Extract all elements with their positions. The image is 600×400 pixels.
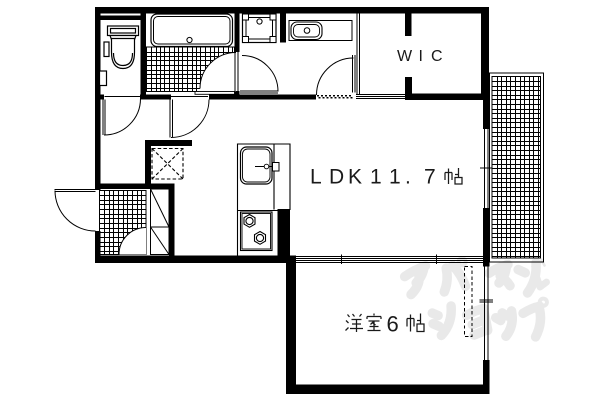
- svg-text:6: 6: [387, 312, 399, 337]
- svg-text:WIC: WIC: [397, 48, 443, 65]
